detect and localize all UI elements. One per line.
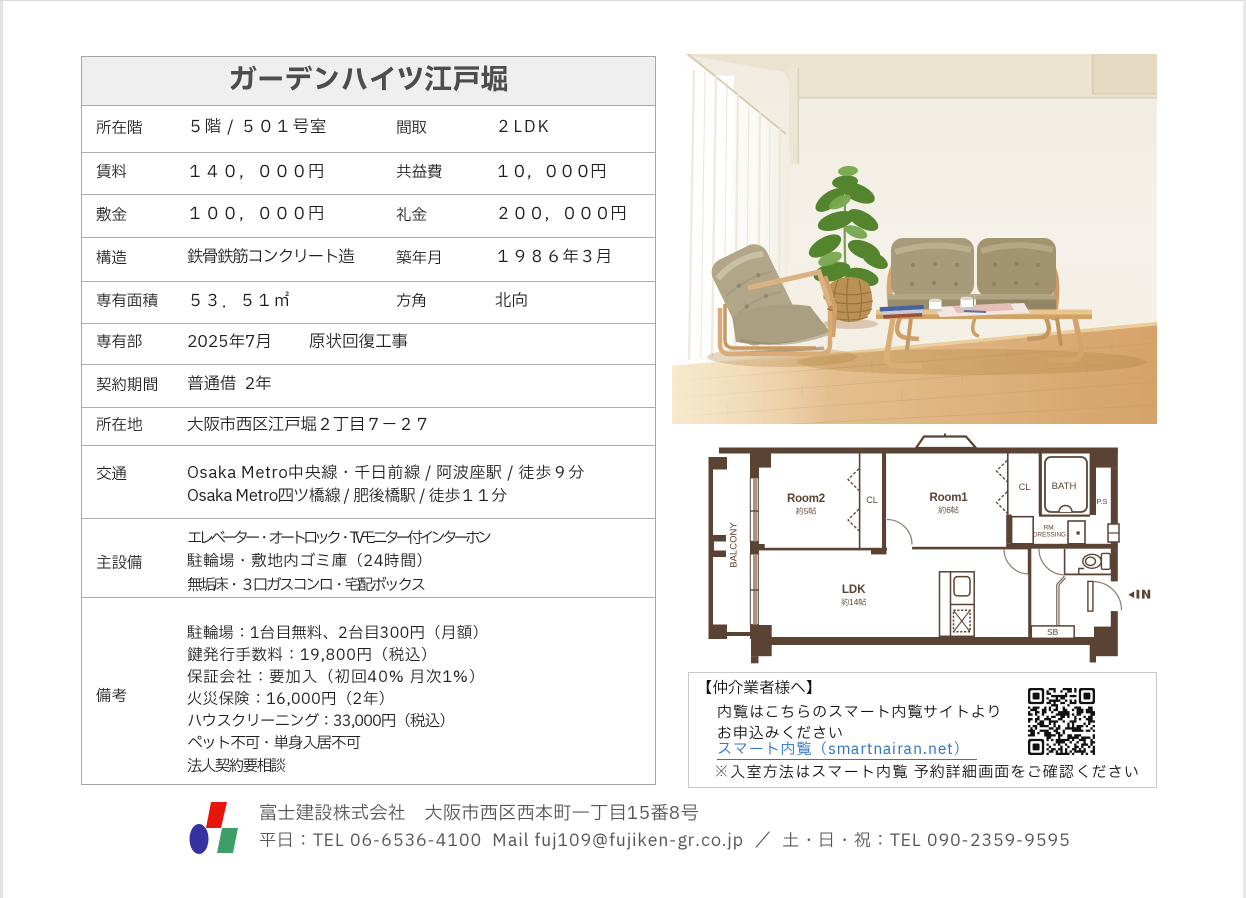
svg-text:SB: SB xyxy=(1047,627,1059,637)
svg-text:約14帖: 約14帖 xyxy=(841,598,866,607)
svg-text:Room2: Room2 xyxy=(787,493,825,505)
svg-text:LDK: LDK xyxy=(842,584,866,596)
svg-text:BATH: BATH xyxy=(1052,481,1077,492)
svg-text:約6帖: 約6帖 xyxy=(938,506,959,515)
svg-text:BALCONY: BALCONY xyxy=(729,522,740,568)
svg-text:約5帖: 約5帖 xyxy=(796,507,817,516)
svg-text:RM.: RM. xyxy=(1044,525,1056,532)
svg-text:DRESSING: DRESSING xyxy=(1033,532,1066,539)
svg-text:CL: CL xyxy=(866,495,878,505)
svg-text:Room1: Room1 xyxy=(930,492,969,504)
svg-text:P.S: P.S xyxy=(1096,497,1107,506)
svg-text:CL: CL xyxy=(1019,482,1031,492)
